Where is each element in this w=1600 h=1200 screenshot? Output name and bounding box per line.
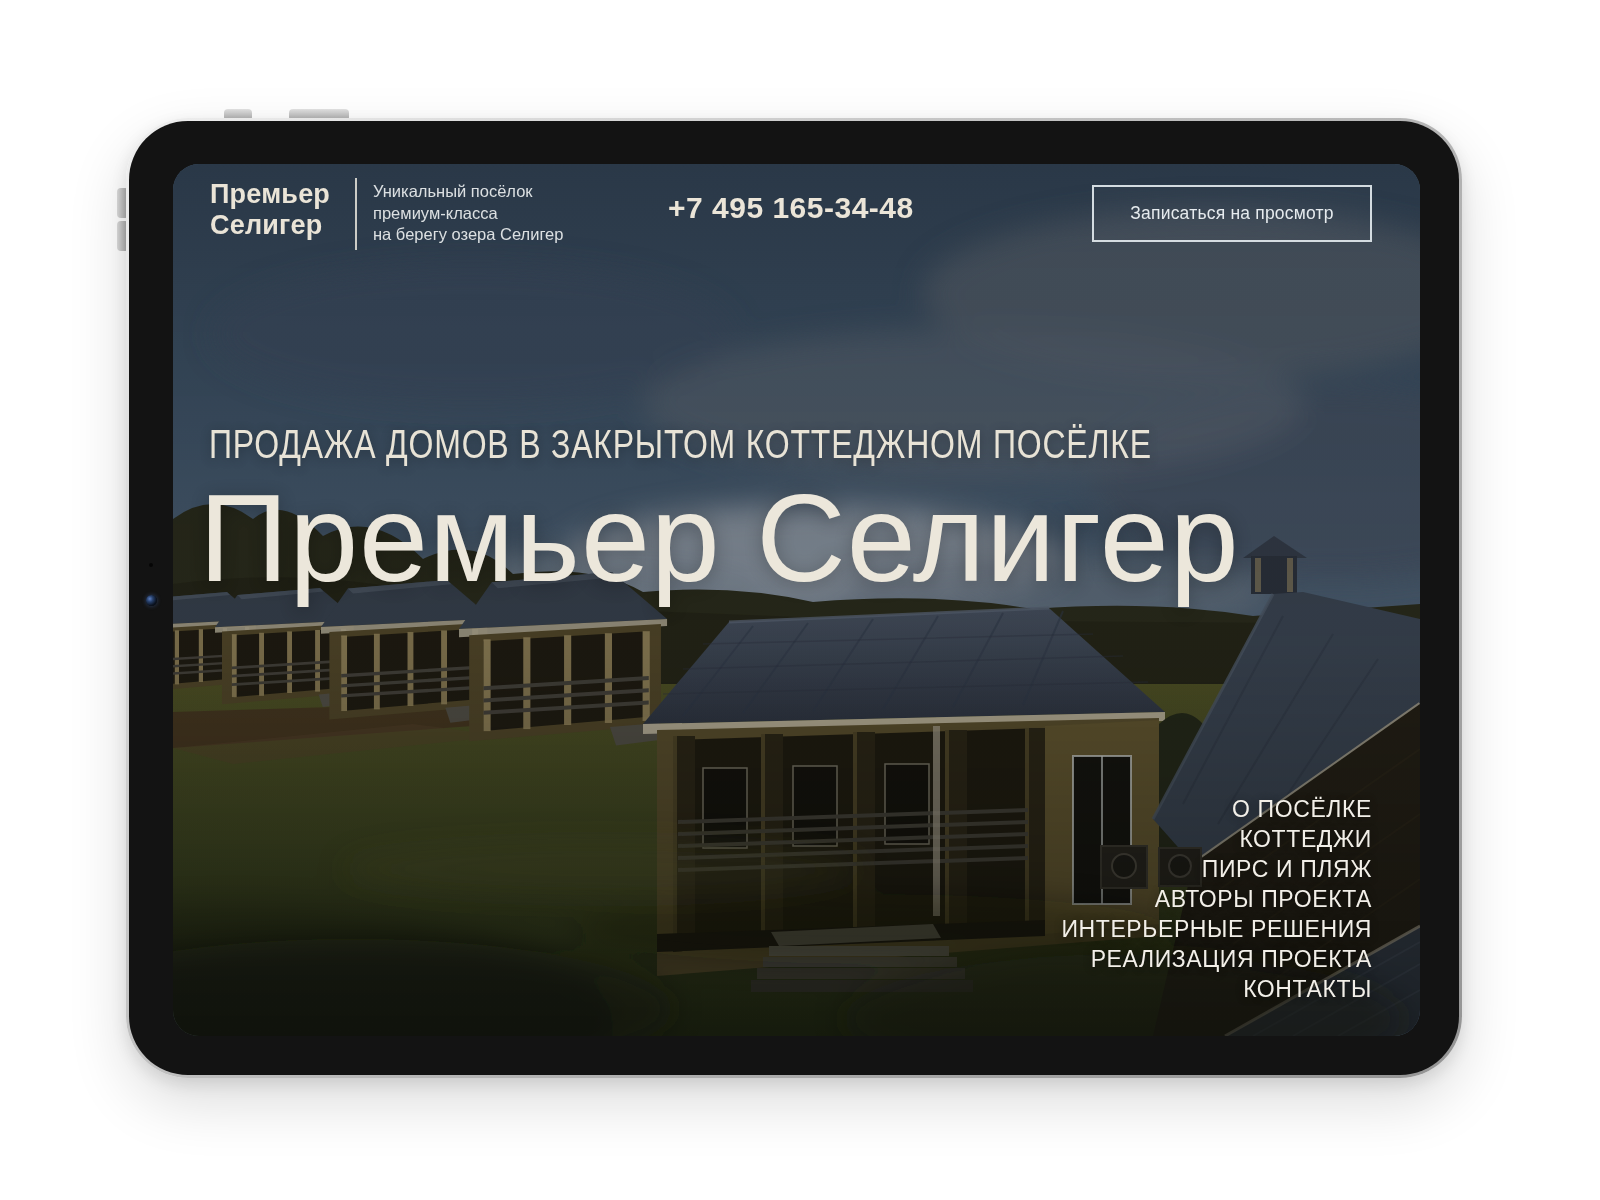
nav-item-project-authors[interactable]: АВТОРЫ ПРОЕКТА [1061,884,1372,914]
nav-item-interior-solutions[interactable]: ИНТЕРЬЕРНЫЕ РЕШЕНИЯ [1061,914,1372,944]
book-viewing-button[interactable]: Записаться на просмотр [1092,185,1372,242]
logo[interactable]: Премьер Селигер [210,179,330,241]
hero-title: Премьер Селигер [199,467,1240,610]
nav-item-pier-beach[interactable]: ПИРС И ПЛЯЖ [1061,854,1372,884]
page-background: Премьер Селигер Уникальный посёлок преми… [0,0,1600,1200]
landing-page: Премьер Селигер Уникальный посёлок преми… [173,164,1420,1036]
front-camera-icon [146,595,157,606]
logo-divider [355,178,357,250]
nav-item-cottages[interactable]: КОТТЕДЖИ [1061,824,1372,854]
tablet-bezel: Премьер Селигер Уникальный посёлок преми… [129,121,1459,1075]
tablet-device: Премьер Селигер Уникальный посёлок преми… [126,118,1462,1078]
main-nav: О ПОСЁЛКЕ КОТТЕДЖИ ПИРС И ПЛЯЖ АВТОРЫ ПР… [1061,794,1372,1004]
hero-kicker: ПРОДАЖА ДОМОВ В ЗАКРЫТОМ КОТТЕДЖНОМ ПОСЁ… [209,422,1152,467]
phone-link[interactable]: +7 495 165-34-48 [668,191,914,225]
logo-line-1: Премьер [210,179,330,209]
logo-line-2: Селигер [210,210,322,240]
tagline-line-3: на берегу озера Селигер [373,224,563,246]
tagline-line-1: Уникальный посёлок [373,181,563,203]
website-screen: Премьер Селигер Уникальный посёлок преми… [173,164,1420,1036]
nav-item-about-village[interactable]: О ПОСЁЛКЕ [1061,794,1372,824]
logo-tagline: Уникальный посёлок премиум-класса на бер… [373,181,563,246]
microphone-dot [149,563,153,567]
tagline-line-2: премиум-класса [373,203,563,225]
nav-item-project-realization[interactable]: РЕАЛИЗАЦИЯ ПРОЕКТА [1061,944,1372,974]
nav-item-contacts[interactable]: КОНТАКТЫ [1061,974,1372,1004]
